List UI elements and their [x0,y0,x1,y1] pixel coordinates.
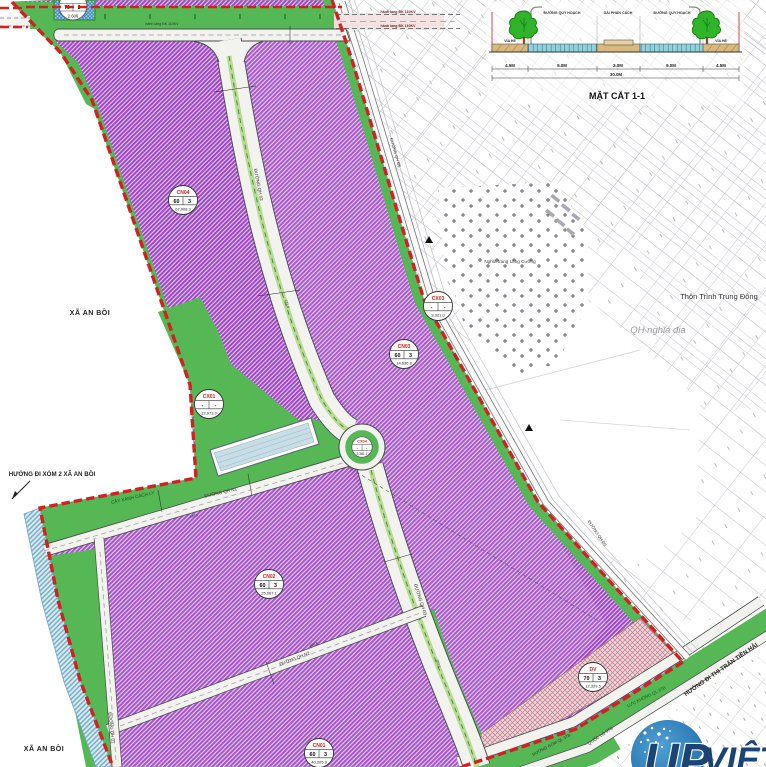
svg-text:3: 3 [598,676,601,682]
svg-text:CX01: CX01 [203,394,216,400]
svg-text:-: - [444,305,446,311]
svg-text:HƯỚNG ĐI XÓM 2 XÃ AN BỒI: HƯỚNG ĐI XÓM 2 XÃ AN BỒI [9,470,96,478]
svg-text:VIỆT: VIỆT [703,740,766,767]
svg-text:2.606: 2.606 [68,14,79,19]
svg-text:-: - [431,305,433,311]
svg-text:CX04: CX04 [357,439,368,444]
svg-text:67,908.3: 67,908.3 [175,207,191,212]
svg-text:3: 3 [409,353,412,359]
svg-text:VỈA HÈ: VỈA HÈ [504,38,516,43]
svg-text:CX03: CX03 [432,296,445,302]
svg-text:CN02: CN02 [263,574,276,580]
svg-text:25,067.1: 25,067.1 [261,591,277,596]
svg-text:Thôn Trình Trung Đông: Thôn Trình Trung Đông [680,292,758,301]
svg-text:60: 60 [395,353,401,359]
svg-text:4.5M: 4.5M [505,63,515,68]
svg-text:60: 60 [260,583,266,589]
svg-text:CN01: CN01 [313,743,326,749]
svg-text:UP: UP [644,735,712,767]
svg-text:9.0M: 9.0M [557,63,567,68]
svg-text:60: 60 [310,752,316,758]
svg-text:60: 60 [174,199,180,205]
svg-text:-: - [215,403,217,409]
svg-text:ĐƯỜNG QUY HOẠCH: ĐƯỜNG QUY HOẠCH [654,10,691,15]
svg-text:-: - [202,403,204,409]
svg-text:12,329.5: 12,329.5 [585,684,601,689]
svg-text:CN04: CN04 [177,190,190,196]
svg-text:ĐƯỜNG QUY HOẠCH: ĐƯỜNG QUY HOẠCH [544,10,581,15]
svg-text:4.5M: 4.5M [716,63,726,68]
svg-text:Nghĩa trang Long Cường: Nghĩa trang Long Cường [484,259,536,264]
svg-text:9.0M: 9.0M [666,63,676,68]
svg-text:VỈA HÈ: VỈA HÈ [715,38,727,43]
svg-text:2,381.1: 2,381.1 [357,452,368,456]
svg-text:14,636.8: 14,636.8 [396,361,412,366]
svg-text:40,205.9: 40,205.9 [311,760,327,765]
svg-text:DV: DV [590,667,598,673]
svg-text:MẶT CẮT 1-1: MẶT CẮT 1-1 [589,91,645,101]
svg-text:QH nghĩa địa: QH nghĩa địa [630,325,685,336]
svg-text:70: 70 [584,676,590,682]
svg-text:30.0M: 30.0M [610,72,623,77]
svg-text:3: 3 [274,583,277,589]
svg-text:22,973.0: 22,973.0 [201,411,217,416]
svg-text:hành lang ĐK 110KV: hành lang ĐK 110KV [145,22,179,26]
svg-text:DẢI PHÂN CÁCH: DẢI PHÂN CÁCH [604,10,633,15]
svg-text:3: 3 [324,752,327,758]
svg-text:CN03: CN03 [398,344,411,350]
svg-text:hành lang ĐK 110KV: hành lang ĐK 110KV [381,24,417,28]
svg-text:3.0M: 3.0M [613,63,623,68]
svg-text:hành lang ĐK 110KV: hành lang ĐK 110KV [381,10,417,14]
svg-text:3: 3 [188,199,191,205]
svg-text:8,321.0: 8,321.0 [431,313,445,318]
